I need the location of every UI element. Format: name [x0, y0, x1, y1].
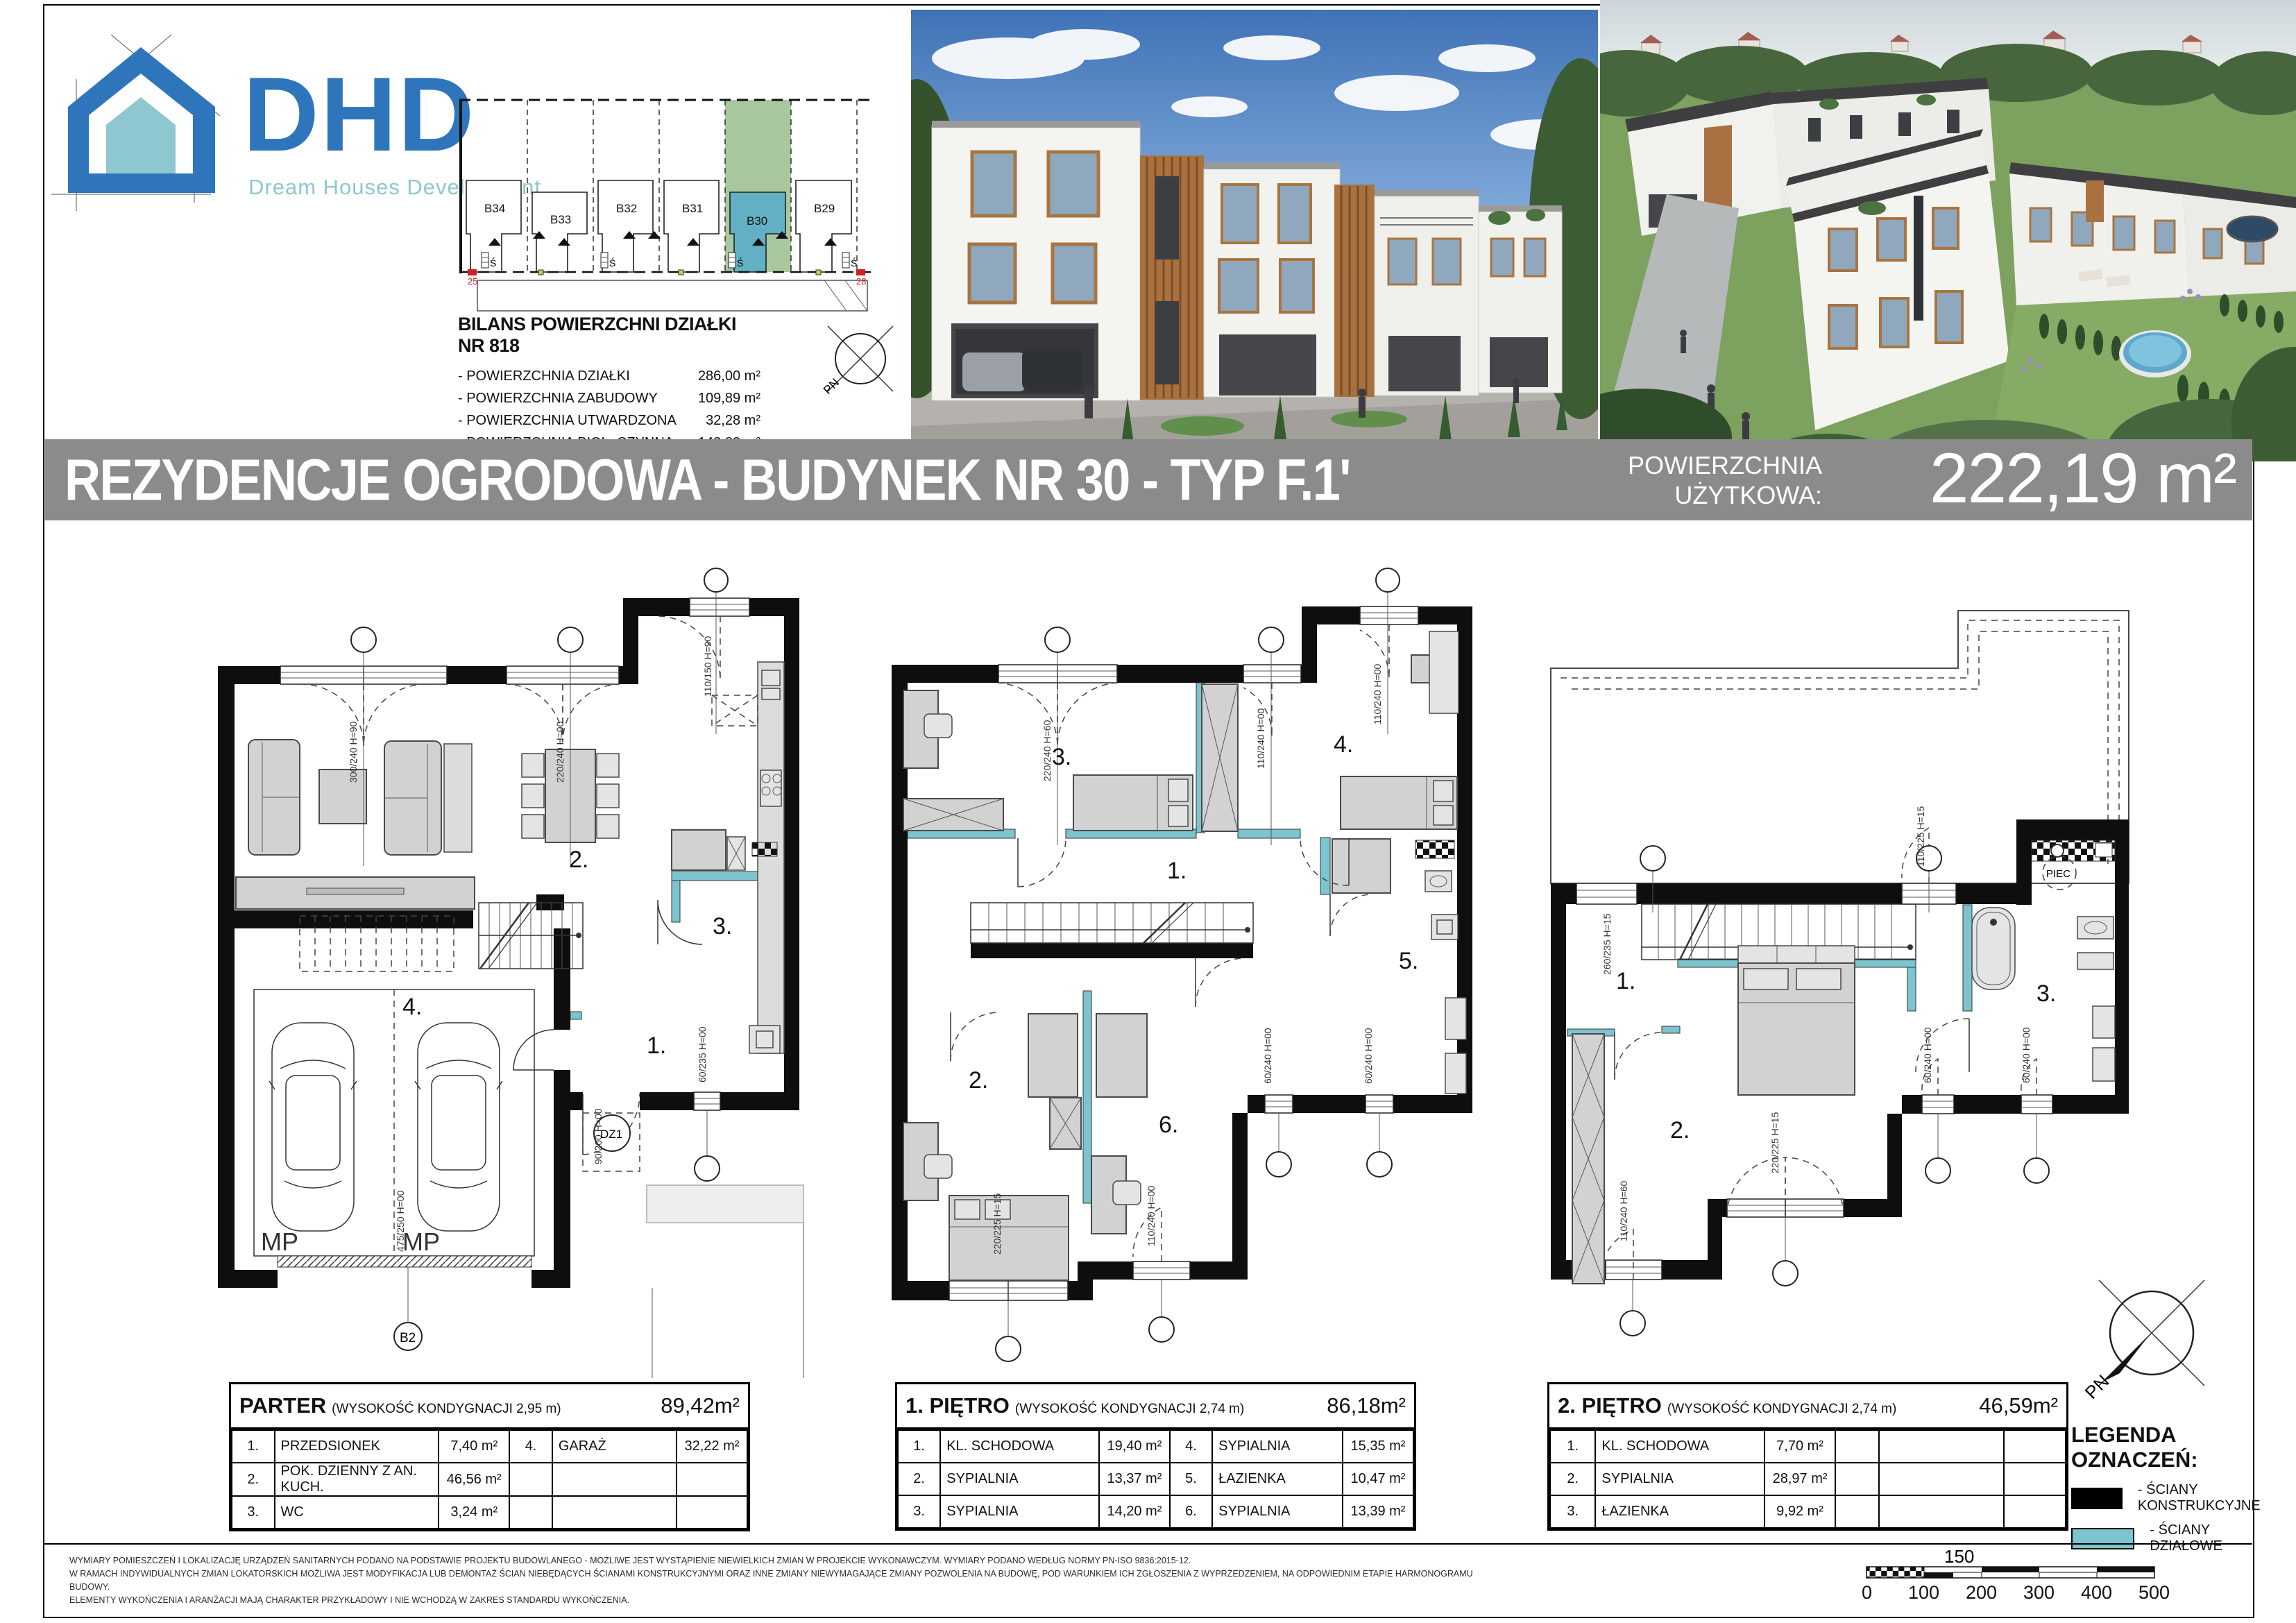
usable-area-value: 222,19 m²	[1930, 438, 2236, 519]
table-row: 3.ŁAZIENKA9,92 m²	[1550, 1495, 2066, 1528]
room-label: 1.	[1167, 858, 1187, 884]
room-label: 4.	[1334, 731, 1353, 758]
bilans-row: - POWIERZCHNIA ZABUDOWY109,89 m²	[458, 387, 760, 409]
room-label: 3.	[1052, 744, 1071, 770]
table-row: 3.SYPIALNIA14,20 m² 6.SYPIALNIA13,39 m²	[898, 1495, 1413, 1528]
table-row: 1.PRZEDSIONEK7,40 m² 4.GARAŻ32,22 m²	[232, 1430, 747, 1463]
svg-text:110/150 H=90: 110/150 H=90	[702, 636, 713, 697]
svg-text:60/240 H=00: 60/240 H=00	[1363, 1028, 1374, 1084]
piec-label: PIEC	[2046, 868, 2070, 880]
bilans-row: - POWIERZCHNIA DZIAŁKI286,00 m²	[458, 365, 760, 387]
scale-150-label: 150	[1944, 1549, 1974, 1567]
table-header: PARTER(WYSOKOŚĆ KONDYGNACJI 2,95 m) 89,4…	[231, 1384, 748, 1429]
partition-walls	[570, 872, 784, 1019]
svg-text:475/250 H=00: 475/250 H=00	[395, 1190, 406, 1252]
svg-text:0: 0	[1862, 1582, 1872, 1603]
floor-plan-parter: B2 DZ1 1. 2. 3. 4. MP MP 300/240 H=90 22…	[203, 568, 813, 1381]
svg-text:Ś: Ś	[737, 257, 743, 269]
table-pietro1: 1. PIĘTRO(WYSOKOŚĆ KONDYGNACJI 2,74 m) 8…	[895, 1382, 1416, 1531]
floor-total-area: 89,42m²	[661, 1393, 740, 1418]
plot-label-b30: B30	[747, 214, 767, 228]
table-parter: PARTER(WYSOKOŚĆ KONDYGNACJI 2,95 m) 89,4…	[229, 1382, 750, 1531]
legend-title: LEGENDA OZNACZEŃ:	[2071, 1422, 2279, 1472]
scale-labels: 0 100 200 300 400 500	[1862, 1582, 2170, 1603]
stairs	[971, 903, 1253, 943]
partition-wall-swatch	[2071, 1528, 2134, 1549]
north-compass-icon: PN	[822, 321, 899, 397]
svg-text:220/240 H=00: 220/240 H=00	[554, 721, 566, 783]
table-pietro2: 2. PIĘTRO(WYSOKOŚĆ KONDYGNACJI 2,74 m) 4…	[1547, 1382, 2068, 1531]
svg-text:300/240 H=90: 300/240 H=90	[348, 721, 359, 783]
bilans-row: - POWIERZCHNIA UTWARDZONA32,28 m²	[458, 409, 760, 432]
footer-disclaimer: WYMIARY POMIESZCZEŃ I LOKALIZACJĘ URZĄDZ…	[69, 1554, 1492, 1607]
plot-label-b33: B33	[550, 213, 571, 226]
room-label: 3.	[713, 913, 732, 940]
bilans-title: BILANS POWIERZCHNI DZIAŁKI NR 818	[458, 314, 760, 357]
plot-label-b32: B32	[616, 202, 637, 215]
table-row: 1.KL. SCHODOWA19,40 m² 4.SYPIALNIA15,35 …	[898, 1430, 1413, 1463]
scale-bar: 150 0 100 200 300 400 500	[1858, 1549, 2177, 1607]
room-label: 1.	[1616, 968, 1635, 994]
svg-text:60/240 H=00: 60/240 H=00	[2021, 1027, 2032, 1083]
footer-divider	[44, 1543, 2252, 1545]
area-label: POWIERZCHNIA UŻYTKOWA:	[1628, 450, 1822, 510]
parking-label: MP	[261, 1227, 298, 1256]
svg-text:PN: PN	[822, 376, 842, 397]
floor-total-area: 86,18m²	[1327, 1393, 1406, 1418]
svg-text:Ś: Ś	[609, 257, 615, 269]
room-label: 1.	[647, 1033, 666, 1059]
table-row: 1.KL. SCHODOWA7,70 m²	[1550, 1430, 2066, 1463]
table-header: 2. PIĘTRO(WYSOKOŚĆ KONDYGNACJI 2,74 m) 4…	[1549, 1384, 2066, 1429]
svg-text:220/225 H=15: 220/225 H=15	[992, 1193, 1003, 1255]
table-row: 3.WC3,24 m²	[232, 1496, 747, 1529]
red-mark-28: 28	[856, 276, 866, 287]
svg-text:90/200 H=00: 90/200 H=00	[593, 1108, 604, 1164]
room-label: 4.	[402, 994, 422, 1020]
entry-walk	[647, 1185, 803, 1223]
table-row: 2.POK. DZIENNY Z AN. KUCH.46,56 m²	[232, 1463, 747, 1496]
room-label: 5.	[1399, 948, 1418, 974]
table-header: 1. PIĘTRO(WYSOKOŚĆ KONDYGNACJI 2,74 m) 8…	[897, 1384, 1414, 1429]
dimension-labels: 220/240 H=60 110/240 H=00 110/240 H=00 2…	[992, 663, 1383, 1255]
svg-text:500: 500	[2138, 1582, 2170, 1603]
table-row: 2.SYPIALNIA13,37 m² 5.ŁAZIENKA10,47 m²	[898, 1463, 1413, 1495]
room-label: 6.	[1159, 1112, 1178, 1138]
room-label: 2.	[969, 1067, 988, 1094]
legend: LEGENDA OZNACZEŃ: - ŚCIANY KONSTRUKCYJNE…	[2071, 1422, 2279, 1563]
rendering-aerial-view	[1600, 0, 2296, 461]
svg-text:Ś: Ś	[851, 257, 857, 269]
red-mark-25: 25	[468, 276, 477, 287]
room-label: 2.	[569, 847, 588, 873]
plot-label-b31: B31	[682, 202, 703, 215]
svg-text:60/240 H=00: 60/240 H=00	[1922, 1027, 1933, 1083]
dhd-logo-text: DHD	[243, 54, 475, 176]
site-plan: B34 B33 B32 B31 B30 B29 Ś Ś Ś Ś 25 28	[450, 64, 874, 315]
structural-wall-swatch	[2071, 1488, 2123, 1509]
page-title: REZYDENCJE OGRODOWA - BUDYNEK NR 30 - TY…	[65, 446, 1350, 513]
svg-text:B2: B2	[400, 1331, 416, 1345]
rendering-street-view	[911, 10, 1598, 462]
floor-total-area: 46,59m²	[1979, 1393, 2058, 1418]
room-label: 2.	[1670, 1117, 1690, 1144]
title-bar: REZYDENCJE OGRODOWA - BUDYNEK NR 30 - TY…	[44, 439, 2252, 520]
svg-text:Ś: Ś	[490, 257, 496, 269]
svg-text:60/235 H=00: 60/235 H=00	[697, 1026, 708, 1082]
legend-item: - ŚCIANY KONSTRUKCYJNE	[2071, 1482, 2279, 1514]
svg-text:110/240 H=00: 110/240 H=00	[1146, 1185, 1157, 1246]
svg-text:100: 100	[1908, 1582, 1939, 1603]
garage	[254, 989, 534, 1267]
north-compass-icon: PN	[2081, 1280, 2204, 1400]
plot-label-b29: B29	[814, 202, 835, 215]
duct-shaft	[1202, 684, 1238, 831]
svg-text:110/240 H=60: 110/240 H=60	[1618, 1180, 1629, 1241]
floor-plan-pietro2: PIEC	[1544, 586, 2245, 1400]
svg-text:110/225 H=15: 110/225 H=15	[1915, 806, 1926, 867]
svg-text:PN: PN	[2081, 1370, 2114, 1400]
parking-label: MP	[402, 1227, 440, 1256]
svg-text:220/225 H=15: 220/225 H=15	[1769, 1112, 1780, 1173]
bilans-block: BILANS POWIERZCHNI DZIAŁKI NR 818 - POWI…	[458, 314, 760, 454]
svg-text:200: 200	[1966, 1582, 1997, 1603]
table-row: 2.SYPIALNIA28,97 m²	[1550, 1463, 2066, 1495]
svg-text:300: 300	[2023, 1582, 2055, 1603]
svg-text:60/240 H=00: 60/240 H=00	[1262, 1028, 1273, 1084]
svg-text:260/235 H=15: 260/235 H=15	[1601, 913, 1613, 975]
svg-text:220/240 H=60: 220/240 H=60	[1041, 720, 1053, 781]
svg-text:110/240 H=00: 110/240 H=00	[1372, 663, 1383, 724]
floor-plan-pietro1: 1. 2. 3. 4. 5. 6. 220/240 H=60 110/240 H…	[880, 568, 1497, 1381]
dhd-logo-house-icon	[50, 29, 234, 213]
plot-label-b34: B34	[484, 202, 505, 215]
room-label: 3.	[2036, 980, 2056, 1007]
svg-text:110/240 H=00: 110/240 H=00	[1255, 708, 1266, 769]
svg-text:400: 400	[2081, 1582, 2112, 1603]
